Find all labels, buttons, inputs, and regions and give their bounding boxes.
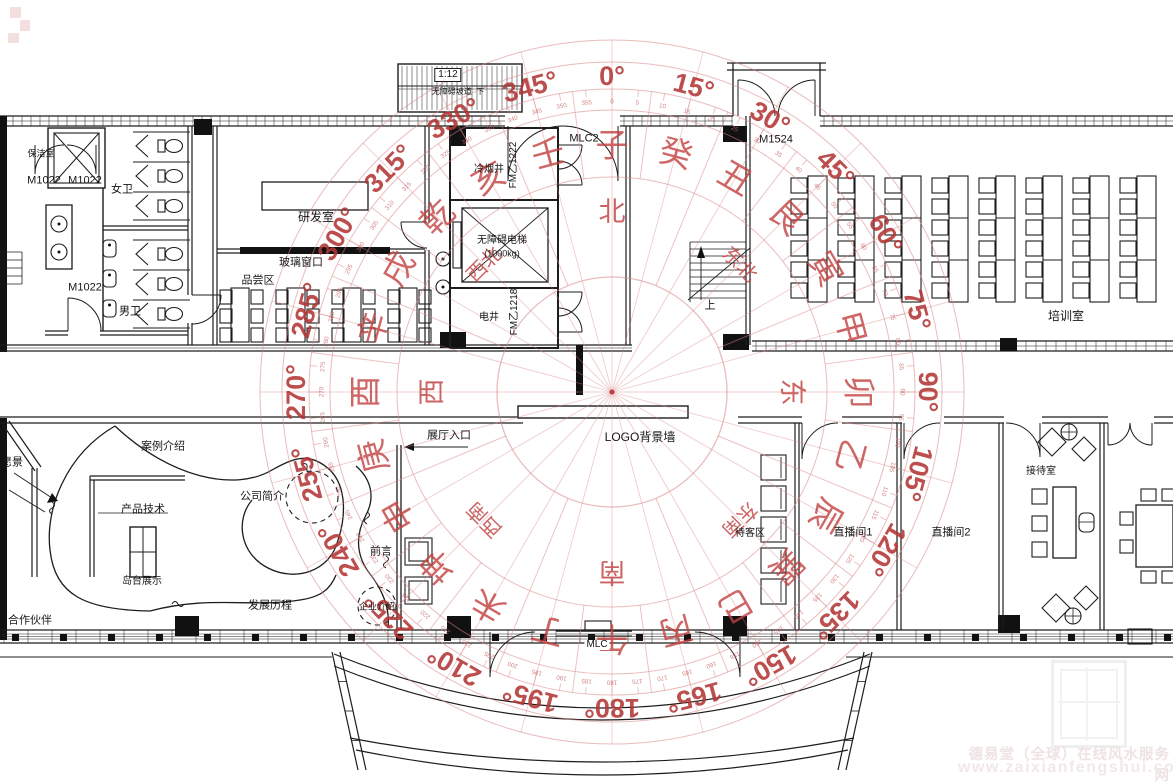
urinal [103, 240, 116, 257]
label-nv-wei: 女卫 [111, 185, 133, 196]
label-anli-jieshao: 案例介绍 [141, 442, 185, 453]
chair [1073, 199, 1089, 214]
compass-tick [907, 366, 914, 367]
compass-minor-degree: 115 [869, 509, 880, 521]
compass-degree-label: 75° [897, 287, 937, 334]
desk [1137, 176, 1156, 302]
compass-minor-degree: 180 [606, 679, 617, 686]
label-door-fm1218: FM乙1218 [510, 289, 520, 336]
compass-degree-label: 210° [422, 639, 485, 693]
compass-tick [380, 582, 385, 586]
plant-diamond [1072, 437, 1096, 461]
chair [979, 178, 995, 193]
stall-door [136, 195, 148, 217]
desk [1043, 176, 1062, 302]
stall-door [136, 273, 148, 295]
urinal [103, 270, 116, 287]
sink-basin [58, 223, 61, 226]
label-lengyanjing: 冷烟井 [474, 165, 504, 175]
chair [838, 283, 854, 298]
chair [1141, 571, 1156, 583]
compass-minor-degree: 195 [531, 667, 543, 677]
urinal [103, 300, 116, 317]
compass-minor-degree: 190 [555, 673, 567, 682]
toilet-bowl [166, 170, 183, 183]
label-yanfashi: 研发室 [298, 211, 334, 223]
compass-minor-degree: 295 [344, 263, 355, 276]
chair [932, 220, 948, 235]
label-baojieshi: 保洁室 [27, 150, 54, 159]
chair [932, 199, 948, 214]
compass-minor-degree: 185 [581, 677, 592, 685]
compass-minor-degree: 310 [384, 199, 396, 212]
window-mullion-block [156, 634, 163, 641]
window-mullion-block [204, 634, 211, 641]
compass-degree-label: 150° [738, 639, 801, 693]
chair [979, 283, 995, 298]
compass-tick [314, 443, 321, 444]
door-arc [67, 145, 96, 174]
compass-minor-degree: 0 [610, 99, 614, 106]
toilet-tank [158, 308, 165, 320]
chair [1120, 540, 1133, 553]
window-mullion-block [1164, 634, 1171, 641]
compass-tick [508, 107, 510, 114]
compass-mountain: 丑 [712, 154, 759, 203]
compass-minor-degree: 70 [880, 288, 889, 297]
compass-degree-label: 270° [281, 364, 311, 420]
chair [1162, 489, 1173, 501]
compass-minor-degree: 345 [531, 107, 543, 117]
compass-tick [484, 660, 487, 666]
window-mullion-block [876, 634, 883, 641]
compass-degree-label: 345° [499, 65, 561, 108]
compass-minor-degree: 55 [845, 221, 855, 231]
compass-minor-degree: 130 [828, 572, 840, 585]
desk [1053, 487, 1076, 558]
label-gongsi-jianjie: 公司简介 [240, 492, 284, 503]
column [576, 345, 583, 395]
dining-table [231, 288, 249, 342]
chair [276, 290, 288, 304]
chair [761, 486, 786, 511]
stall-door [136, 135, 148, 157]
chair [1073, 178, 1089, 193]
window-mullion-block [1020, 634, 1027, 641]
chair [251, 309, 263, 323]
chair [932, 241, 948, 256]
compass-minor-degree: 165 [681, 667, 693, 677]
compass-minor-degree: 95 [897, 414, 905, 422]
compass-degree-label: 195° [499, 676, 561, 719]
compass-minor-degree: 10 [658, 102, 667, 110]
canopy [350, 738, 854, 762]
window-mullion-block [348, 634, 355, 641]
chair [1141, 489, 1156, 501]
office-chair [1079, 513, 1094, 532]
urinal [108, 274, 111, 277]
column [1000, 338, 1017, 351]
compass-tick [880, 517, 886, 520]
compass-direction: 西 [417, 379, 447, 406]
stall-door [136, 243, 148, 265]
label-ramp-slope: 1:12 [434, 68, 461, 82]
chair [1073, 262, 1089, 277]
compass-sector-line [640, 92, 651, 179]
compass-minor-degree: 170 [656, 673, 668, 682]
floor-drain [442, 286, 445, 289]
chair [979, 220, 995, 235]
window-mullion-block [1116, 634, 1123, 641]
compass-degree-label: 15° [670, 67, 717, 107]
toilet-bowl [166, 308, 183, 321]
compass-tick [802, 160, 806, 165]
label-door-fm1222: FM乙1222 [509, 142, 519, 189]
compass-tick [438, 634, 442, 640]
toilet-bowl [166, 140, 183, 153]
compass-minor-degree: 40 [794, 165, 804, 175]
compass-mountain: 寅 [802, 245, 851, 292]
chair [885, 262, 901, 277]
label-door-m1022-3: M1022 [68, 283, 102, 294]
label-door-m1524: M1524 [759, 135, 793, 146]
label-door-m1022-1: M1022 [27, 176, 61, 187]
compass-sector-line [825, 352, 912, 363]
toilet-tank [158, 278, 165, 290]
label-pinchangqu: 品尝区 [242, 276, 275, 287]
label-zhanting-rukou: 展厅入口 [427, 431, 471, 442]
compass-minor-degree: 350 [556, 102, 568, 111]
floorplan-canvas: 0510152025303540455055606570758085909510… [0, 0, 1173, 782]
compass-minor-degree: 150 [750, 638, 763, 650]
compass-tick [559, 684, 560, 691]
compass-tick [890, 493, 897, 495]
compass-mountain: 未 [465, 582, 512, 631]
compass-tick [310, 366, 317, 367]
pointer-line [9, 490, 45, 512]
compass-tick [364, 562, 370, 566]
compass-tick [337, 264, 343, 267]
label-hezuo-huoban: 合作伙伴 [8, 616, 52, 627]
label-qianyan: 前言 [370, 547, 392, 558]
label-zhibojian1: 直播间1 [833, 528, 872, 539]
compass-minor-degree: 160 [705, 659, 718, 669]
chair [1026, 178, 1042, 193]
compass-minor-degree: 250 [334, 485, 344, 498]
window-mullion-block [1068, 634, 1075, 641]
compass-minor-degree: 220 [419, 608, 432, 620]
compass-tick [484, 117, 487, 123]
sink-basin [58, 251, 61, 254]
label-boli-chuangkou: 玻璃窗口 [279, 258, 323, 269]
compass-tick [364, 218, 370, 222]
chair [1032, 516, 1047, 531]
label-fazhan-licheng: 发展历程 [248, 601, 292, 612]
toilet-tank [158, 248, 165, 260]
elevator-counterweight [453, 222, 461, 268]
column [447, 616, 471, 638]
chair [363, 290, 375, 304]
plan-layer [0, 63, 1173, 775]
label-peixunshi: 培训室 [1048, 310, 1084, 322]
chair [1026, 241, 1042, 256]
compass-minor-degree: 85 [897, 363, 905, 371]
compass-tick [663, 94, 664, 101]
compass-tick [438, 144, 442, 150]
toilet-tank [158, 170, 165, 182]
chair [932, 283, 948, 298]
compass-center [610, 390, 615, 395]
compass-tick [327, 493, 334, 495]
compass-minor-degree: 60 [858, 242, 868, 252]
compass-minor-degree: 275 [319, 361, 327, 372]
compass-mountain: 癸 [655, 131, 696, 175]
compass-tick [802, 619, 806, 624]
chair [1073, 241, 1089, 256]
chair [979, 241, 995, 256]
compass-mountain: 丁 [527, 608, 568, 652]
compass-mountain: 亥 [465, 154, 512, 203]
compass-minor-degree: 200 [506, 659, 519, 669]
compass-direction: 东 [777, 379, 807, 406]
feng-shui-compass: 0510152025303540455055606570758085909510… [260, 40, 964, 744]
compass-minor-degree: 205 [483, 649, 496, 660]
label-door-m1022-2: M1022 [68, 176, 102, 187]
compass-tick [559, 94, 560, 101]
compass-tick [713, 107, 715, 114]
compass-mountain: 卯 [841, 376, 878, 409]
chair [332, 328, 344, 342]
chair [932, 178, 948, 193]
door-arc [1130, 423, 1152, 445]
chair [1120, 178, 1136, 193]
watermark-url: www.zaixianfengshui.com [958, 759, 1170, 777]
compass-minor-degree: 355 [581, 99, 592, 107]
compass-tick [380, 197, 385, 201]
compass-mountain: 辛 [351, 307, 395, 348]
chair [1032, 489, 1047, 504]
chair [1162, 571, 1173, 583]
chair [1026, 262, 1042, 277]
compass-minor-degree: 15 [683, 108, 692, 117]
chair [1032, 542, 1047, 557]
compass-minor-degree: 305 [369, 219, 381, 232]
toilet-bowl [166, 200, 183, 213]
label-daotai-zhanshi: 岛台展示 [122, 577, 162, 587]
compass-direction: 北 [599, 197, 626, 227]
compass-tick [713, 670, 715, 677]
compass-tick [508, 670, 510, 677]
compass-tick [663, 684, 664, 691]
compass-mountain: 申 [374, 492, 423, 539]
chair [220, 309, 232, 323]
toilet-tank [158, 140, 165, 152]
compass-minor-degree: 20 [707, 115, 716, 124]
label-dianjing: 电井 [479, 313, 499, 323]
label-dianti-kg: (1000kg) [484, 250, 520, 259]
compass-sector-line [825, 420, 912, 431]
compass-degree-label: 285° [285, 279, 328, 341]
plant-diamond [1074, 586, 1098, 610]
compass-tick [586, 687, 587, 694]
compass-minor-degree: 340 [507, 114, 520, 124]
compass-tick [839, 582, 844, 586]
chair [1120, 262, 1136, 277]
toilet-bowl [166, 248, 183, 261]
compass-degree-label: 180° [584, 693, 640, 723]
window-mullion-block [252, 634, 259, 641]
compass-minor-degree: 125 [843, 552, 855, 565]
chair [251, 290, 263, 304]
wall-fill [0, 116, 7, 352]
compass-minor-degree: 240 [355, 530, 367, 543]
compass-minor-degree: 155 [728, 649, 741, 660]
compass-tick [417, 160, 421, 165]
desk [949, 176, 968, 302]
window-mullion-block [972, 634, 979, 641]
compass-tick [854, 562, 860, 566]
table [262, 182, 368, 210]
sink-counter [46, 205, 72, 269]
compass-tick [638, 687, 639, 694]
label-stair-up: 上 [705, 301, 716, 312]
compass-minor-degree: 100 [893, 437, 902, 449]
compass-tick [638, 90, 639, 97]
compass-minor-degree: 65 [870, 265, 879, 275]
compass-minor-degree: 270 [319, 386, 326, 397]
door-arc [1108, 423, 1130, 445]
compass-minor-degree: 260 [322, 436, 331, 448]
window-mullion-block [108, 634, 115, 641]
chair [979, 262, 995, 277]
chair [1026, 199, 1042, 214]
stair-arrowhead [697, 246, 705, 258]
column [175, 616, 199, 636]
wall-fill [0, 418, 7, 640]
desk [1090, 176, 1109, 302]
label-yuanjing: 愿景 [1, 458, 23, 469]
compass-tick [880, 264, 886, 267]
chair [1073, 220, 1089, 235]
chair [276, 309, 288, 323]
compass-minor-degree: 245 [344, 508, 355, 521]
column [194, 119, 212, 135]
pointer-line [14, 473, 52, 498]
plant-diamond [1042, 594, 1070, 622]
compass-tick [907, 418, 914, 419]
floorplan-drawing: 0510152025303540455055606570758085909510… [0, 0, 1173, 782]
label-ramp-name: 无障碍坡道 下 [432, 88, 484, 96]
compass-tick [737, 117, 740, 123]
compass-mountain: 丙 [655, 608, 696, 652]
compass-minor-degree: 80 [894, 338, 902, 347]
label-zhibojian2: 直播间2 [931, 528, 970, 539]
chair [1026, 220, 1042, 235]
compass-degree-label: 255° [285, 443, 328, 505]
chair [220, 290, 232, 304]
label-jiedaishi: 接待室 [1026, 467, 1056, 477]
label-nan-wei: 男卫 [119, 307, 141, 318]
compass-mountain: 乙 [828, 435, 872, 476]
conference-table [1136, 505, 1173, 567]
chair [220, 328, 232, 342]
urinal [108, 304, 111, 307]
chair [1120, 241, 1136, 256]
compass-minor-degree: 175 [631, 677, 642, 685]
label-logo-wall: LOGO背景墙 [605, 431, 676, 443]
compass-minor-degree: 5 [635, 99, 640, 106]
compass-mountain: 子 [596, 127, 629, 164]
compass-direction: 南 [599, 557, 626, 587]
compass-degree-label: 240° [311, 518, 365, 581]
compass-mountain: 酉 [347, 376, 384, 409]
compass-mountain: 庚 [351, 435, 395, 476]
toilet-bowl [166, 278, 183, 291]
chair [1120, 220, 1136, 235]
compass-degree-label: 165° [663, 676, 725, 719]
corner-watermark-seal [4, 5, 36, 45]
desk [855, 176, 874, 302]
window-mullion-block [300, 634, 307, 641]
dining-table [399, 288, 417, 342]
chair [1073, 283, 1089, 298]
chair [251, 328, 263, 342]
compass-degree-label: 0° [599, 61, 625, 91]
column [440, 332, 466, 348]
door-arc [1006, 423, 1040, 457]
compass-minor-degree: 110 [879, 485, 889, 497]
compass-tick [417, 619, 421, 624]
door-arc [68, 298, 101, 331]
compass-degree-label: 105° [896, 443, 939, 505]
compass-minor-degree: 285 [327, 311, 337, 323]
label-door-mlc: MLC [584, 640, 609, 650]
compass-mountain: 巳 [712, 582, 759, 631]
compass-minor-degree: 255 [327, 461, 337, 473]
compass-degree-label: 90° [913, 372, 943, 413]
chair [1120, 283, 1136, 298]
chair [1120, 512, 1133, 525]
stall-door [136, 165, 148, 187]
display-wall [150, 575, 336, 611]
label-daikequ: 待客区 [735, 529, 765, 539]
chair [1026, 283, 1042, 298]
window-mullion-block [12, 634, 19, 641]
compass-minor-degree: 35 [774, 150, 784, 160]
column [998, 615, 1020, 633]
window-mullion-block [924, 634, 931, 641]
label-dianti: 无障碍电梯 [477, 236, 527, 246]
compass-tick [586, 90, 587, 97]
compass-minor-degree: 75 [888, 313, 897, 322]
window-mullion-block [60, 634, 67, 641]
chair [1120, 199, 1136, 214]
chair [979, 199, 995, 214]
window-mullion-block [636, 634, 643, 641]
desk [996, 176, 1015, 302]
label-chanpin-jishu: 产品技术 [121, 505, 165, 516]
compass-minor-degree: 90 [899, 389, 906, 396]
compass-minor-degree: 105 [887, 461, 897, 473]
compass-minor-degree: 265 [319, 411, 327, 422]
watermark-seal [1051, 660, 1127, 748]
label-qiye-jieshao: 企业介绍 [359, 603, 395, 612]
label-door-mlc2: MLC2 [569, 134, 598, 145]
window-mullion-block [492, 634, 499, 641]
compass-tick [310, 418, 317, 419]
compass-minor-degree: 335 [483, 124, 496, 135]
compass-tick [890, 288, 897, 290]
